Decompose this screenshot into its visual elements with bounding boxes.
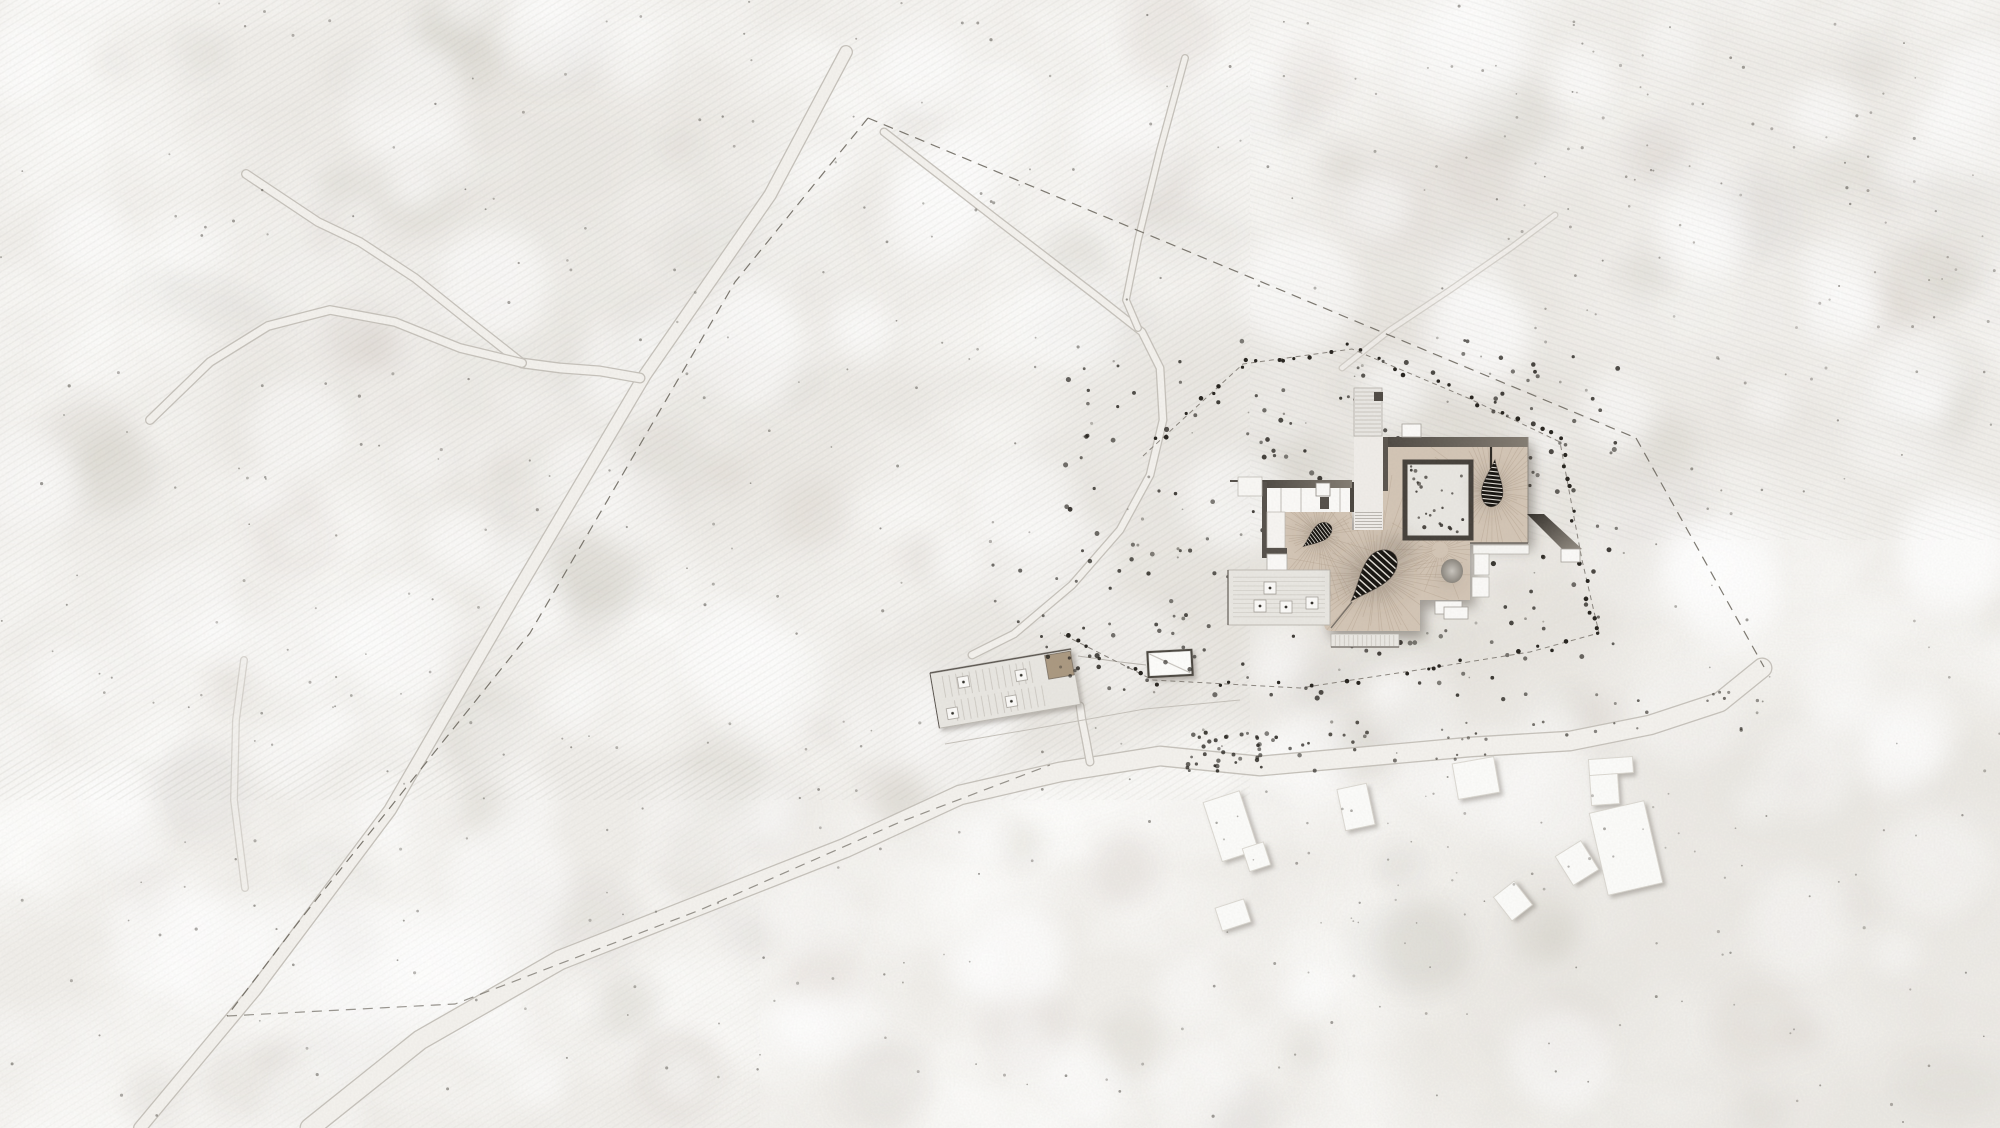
- site-plan-canvas: [0, 0, 2000, 1128]
- paper-grain-layer: [0, 0, 2000, 1128]
- architectural-site-plan: [0, 0, 2000, 1128]
- paper-grain: [0, 0, 2000, 1128]
